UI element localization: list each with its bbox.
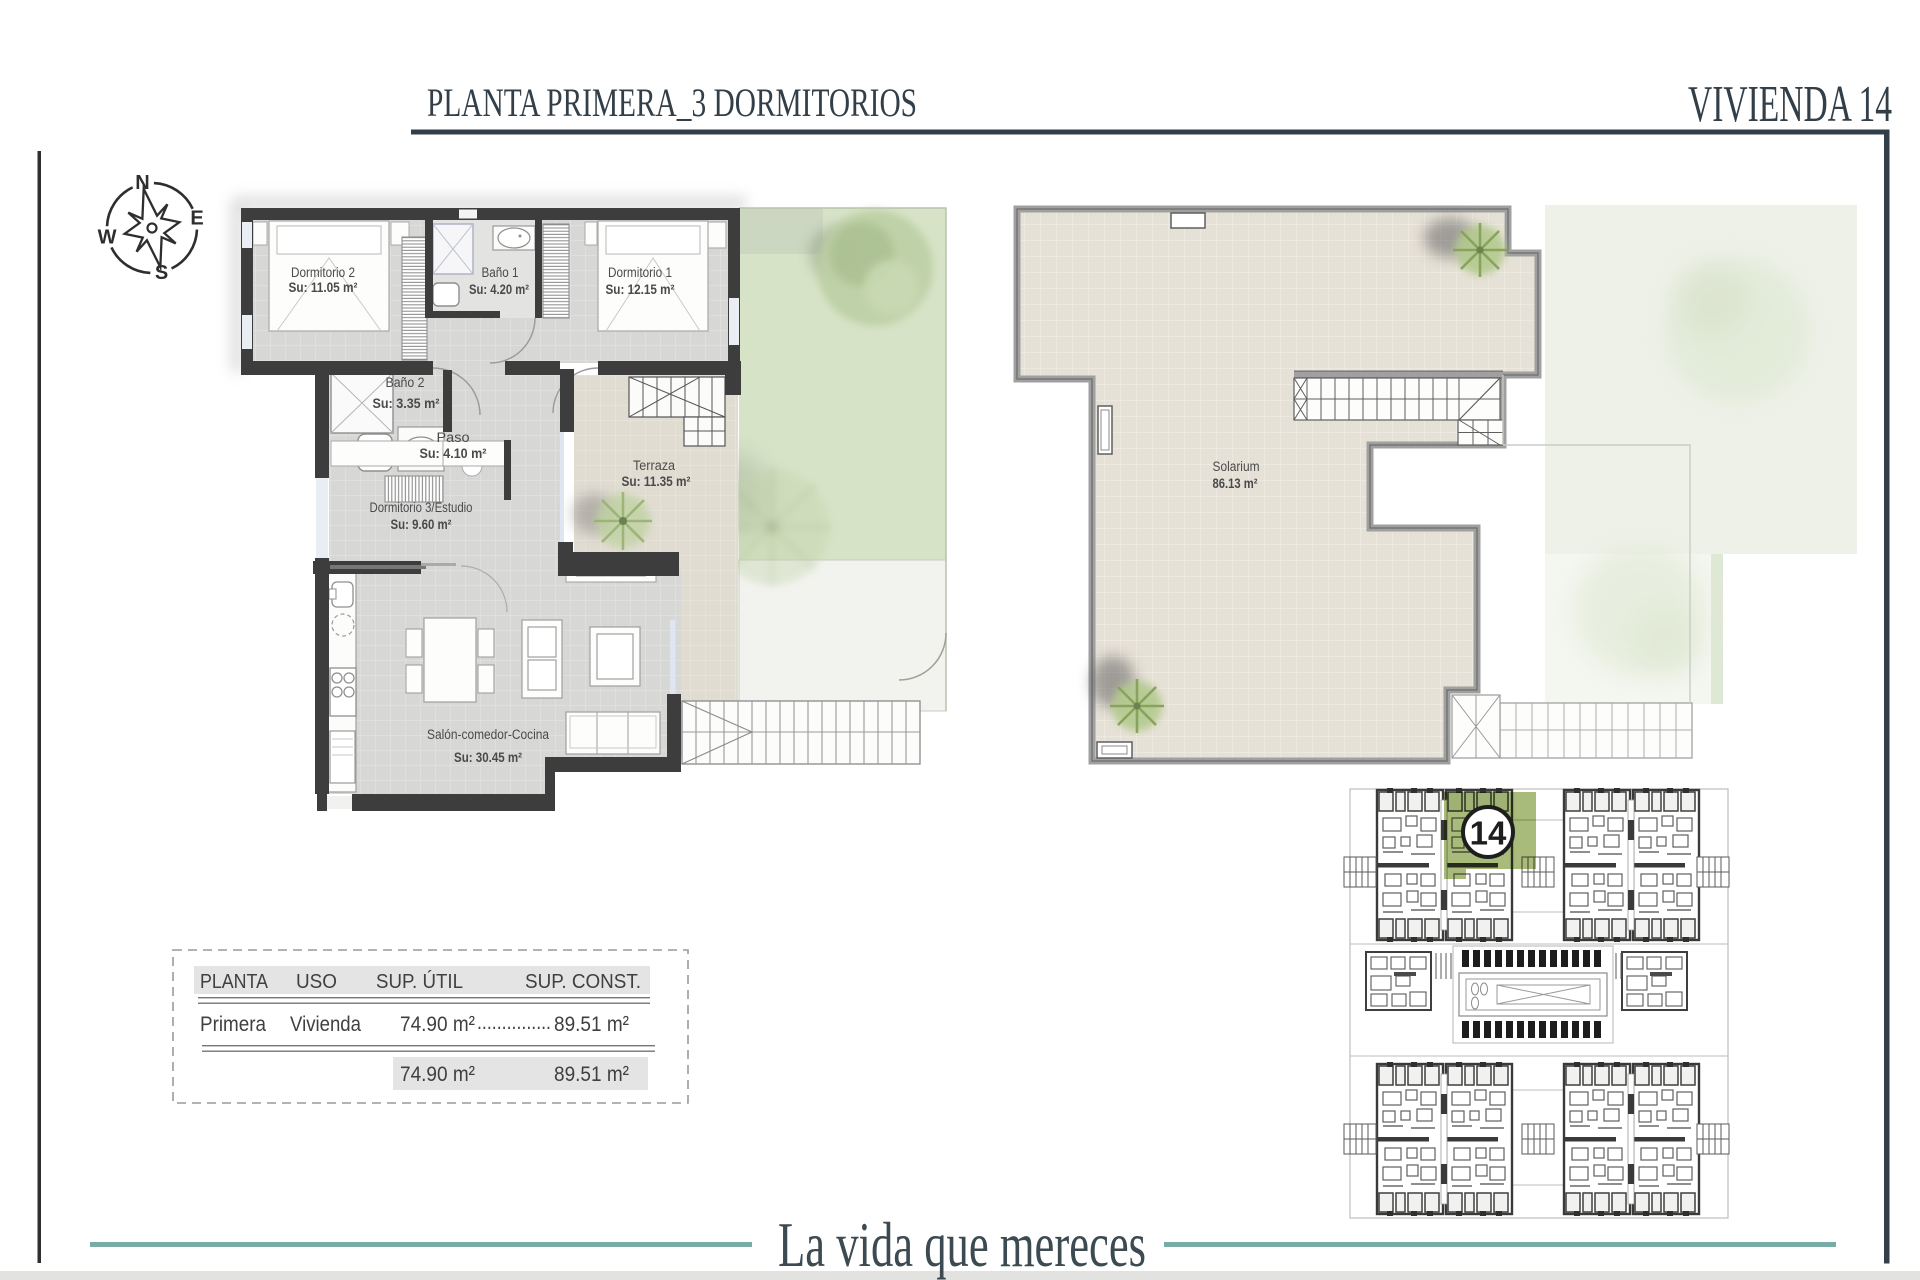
svg-text:PLANTA PRIMERA_3 DORMITORIOS: PLANTA PRIMERA_3 DORMITORIOS [427,80,917,125]
svg-text:Terraza: Terraza [633,458,675,473]
svg-text:E: E [190,207,203,229]
svg-text:Su: 4.10 m²: Su: 4.10 m² [420,446,487,461]
svg-text:Su: 9.60 m²: Su: 9.60 m² [391,517,452,532]
svg-text:Dormitorio 1: Dormitorio 1 [608,265,672,280]
svg-text:...............: ............... [477,1010,551,1034]
svg-text:89.51 m²: 89.51 m² [554,1062,629,1086]
svg-text:SUP. ÚTIL: SUP. ÚTIL [376,970,463,993]
svg-text:Su: 30.45 m²: Su: 30.45 m² [454,750,522,765]
svg-text:Salón-comedor-Cocina: Salón-comedor-Cocina [427,727,549,742]
svg-text:Su: 4.20 m²: Su: 4.20 m² [469,282,529,297]
svg-text:Paso: Paso [437,430,470,445]
svg-text:Baño 2: Baño 2 [386,375,425,390]
svg-text:La vida que mereces: La vida que mereces [778,1210,1146,1280]
svg-text:USO: USO [296,970,337,993]
svg-text:S: S [155,262,168,284]
svg-text:VIVIENDA 14: VIVIENDA 14 [1688,76,1892,133]
svg-text:14: 14 [1470,815,1507,852]
svg-text:Su: 11.05 m²: Su: 11.05 m² [289,280,358,295]
svg-text:74.90 m²: 74.90 m² [400,1062,475,1086]
svg-text:74.90 m²: 74.90 m² [400,1012,475,1036]
svg-text:Baño 1: Baño 1 [482,265,519,280]
svg-text:Vivienda: Vivienda [290,1012,361,1036]
svg-text:W: W [98,227,117,249]
svg-text:Su: 12.15 m²: Su: 12.15 m² [606,282,675,297]
svg-text:Su: 11.35 m²: Su: 11.35 m² [622,474,691,489]
svg-text:PLANTA: PLANTA [200,970,268,993]
svg-text:N: N [135,172,149,194]
svg-text:89.51 m²: 89.51 m² [554,1012,629,1036]
svg-text:Su: 3.35 m²: Su: 3.35 m² [373,396,440,411]
svg-text:Primera: Primera [200,1012,266,1036]
svg-text:Dormitorio 3/Estudio: Dormitorio 3/Estudio [370,500,473,515]
svg-text:Dormitorio 2: Dormitorio 2 [291,265,355,280]
svg-text:SUP. CONST.: SUP. CONST. [525,970,641,993]
svg-text:86.13 m²: 86.13 m² [1213,476,1258,491]
svg-text:Solarium: Solarium [1213,459,1260,474]
